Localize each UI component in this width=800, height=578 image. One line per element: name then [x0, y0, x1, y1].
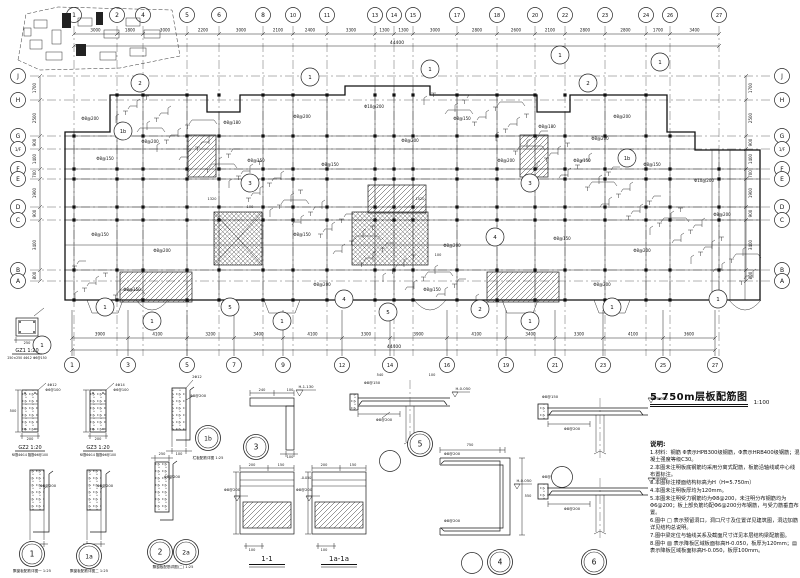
grid-bubble-bottom-label: 14: [387, 363, 393, 369]
rebar-mark: [640, 204, 643, 213]
rebar-mark: [318, 234, 323, 238]
column: [495, 298, 498, 301]
column: [72, 134, 75, 137]
column: [563, 93, 566, 96]
column: [644, 134, 647, 137]
column: [411, 218, 414, 221]
plan-callout-label: 1: [716, 297, 720, 303]
column: [217, 93, 220, 96]
rebar-annotation: Φ10@200: [364, 104, 384, 109]
grid-bubble-top-label: 24: [643, 13, 649, 19]
dim-text: 1900: [32, 187, 37, 198]
rebar-annotation: 100: [435, 253, 442, 257]
column: [392, 218, 395, 221]
grid-bubble-top-label: 17: [454, 13, 460, 19]
column: [644, 268, 647, 271]
rebar-mark: [323, 229, 332, 232]
column: [325, 298, 328, 301]
column: [392, 93, 395, 96]
rebar-annotation: 500: [10, 409, 17, 413]
rebar-mark: [189, 120, 217, 124]
rebar-mark: [599, 175, 602, 184]
grid-bubble-bottom-label: 9: [281, 362, 285, 369]
rebar-mark: [267, 183, 272, 187]
column: [325, 134, 328, 137]
rebar-annotation: 4Φ12: [47, 383, 56, 387]
rebar-annotation: 2Φ12: [192, 375, 201, 379]
plan-callout-label: 1: [308, 75, 312, 81]
detail-1a: [83, 470, 110, 547]
rebar-annotation: Φ8@150: [321, 162, 339, 167]
rebar-mark: [508, 124, 517, 127]
dim-text: 3400: [525, 332, 536, 337]
rebar-mark: [712, 240, 715, 249]
rebar-mark: [630, 182, 633, 191]
section-label: 1a-1a: [329, 555, 349, 563]
detail-6-upper: [538, 398, 666, 458]
grid-bubble-top-label: 18: [494, 13, 500, 19]
dim-text: 4100: [628, 332, 639, 337]
column: [261, 205, 264, 208]
dim-text: 900: [32, 209, 37, 217]
rebar-mark: [281, 200, 309, 204]
rebar-mark: [486, 110, 489, 119]
rebar-mark: [455, 103, 458, 112]
column: [495, 268, 498, 271]
rebar-mark: [681, 233, 684, 242]
column: [563, 134, 566, 137]
grid-bubble-right-label: 1/F: [779, 147, 786, 152]
column: [185, 268, 188, 271]
rebar-annotation: Φ8@200: [564, 426, 581, 431]
dim-text: 3300: [346, 28, 357, 33]
column: [603, 177, 606, 180]
plain-circle: [380, 451, 401, 472]
rebar-mark: [236, 176, 241, 180]
column: [563, 298, 566, 301]
column: [217, 218, 220, 221]
column: [563, 205, 566, 208]
rebar-annotation: 150: [350, 463, 357, 467]
column: [185, 218, 188, 221]
rebar-annotation: Φ8@200: [296, 487, 313, 492]
note-item: 1.材料：钢筋 Φ表示HPB300级钢筋，Φ表示HRB400级钢筋；混凝土强度等…: [650, 450, 800, 464]
grid-bubble-bottom-label: 5: [185, 362, 189, 369]
rebar-annotation: Φ8@150: [91, 232, 109, 237]
rebar-mark: [281, 171, 284, 180]
grid-bubble-left-label: C: [16, 217, 20, 224]
dim-text: 1800: [125, 28, 136, 33]
column: [291, 205, 294, 208]
rebar-mark: [678, 208, 683, 212]
rebar-annotation: 240: [259, 388, 266, 392]
rebar-mark: [123, 111, 128, 115]
grid-bubble-top-label: 1: [72, 12, 76, 19]
dim-text: 3300: [574, 332, 585, 337]
column: [373, 268, 376, 271]
rebar-mark: [436, 294, 445, 297]
grid-bubble-top-label: 26: [667, 13, 673, 19]
dim-text: 3000: [236, 28, 247, 33]
grid-bubble-top-label: 23: [602, 13, 608, 19]
column: [392, 298, 395, 301]
detail-bubble-label: 6: [592, 558, 597, 567]
column: [325, 205, 328, 208]
grid-bubble-right-label: E: [780, 176, 784, 183]
column: [141, 268, 144, 271]
detail-bubble-label: 2: [158, 548, 163, 557]
rebar-annotation: 1320: [208, 197, 217, 201]
dim-text: 2500: [748, 112, 753, 123]
note-item: 4.本图未注明板厚均为120mm。: [650, 488, 800, 495]
rebar-mark: [272, 178, 281, 181]
rebar-annotation: 100: [287, 388, 294, 392]
grid-bubble-left-label: E: [16, 176, 20, 183]
rebar-mark: [292, 222, 301, 225]
rebar-annotation: Φ8@150: [573, 158, 591, 163]
rebar-mark: [568, 168, 571, 177]
grid-bubble-bottom-label: 27: [712, 363, 718, 369]
rebar-annotation: 4Φ14: [115, 383, 125, 387]
rebar-mark: [539, 131, 548, 134]
rebar-mark: [322, 200, 325, 209]
dim-text: 1700: [748, 82, 753, 93]
plan-callout-label: 4: [342, 297, 346, 303]
column: [603, 205, 606, 208]
dim-text: 2800: [580, 28, 591, 33]
column: [717, 205, 720, 208]
plan-callout-label: 2: [478, 307, 482, 313]
column: [141, 205, 144, 208]
dim-total: 44400: [387, 344, 401, 350]
column: [141, 134, 144, 137]
grid-bubble-left-label: 1/F: [15, 147, 22, 152]
plan-callout-label: 3: [248, 181, 252, 187]
column: [411, 93, 414, 96]
dim-text: 900: [32, 138, 37, 146]
rebar-mark: [650, 226, 653, 235]
rebar-annotation: Φ8@150: [453, 116, 471, 121]
column: [373, 167, 376, 170]
grid-bubble-top-label: 20: [532, 13, 538, 19]
rebar-mark: [103, 273, 108, 277]
rebar-mark: [344, 214, 353, 217]
column: [392, 177, 395, 180]
rebar-mark: [179, 157, 188, 160]
column: [141, 167, 144, 170]
rebar-mark: [154, 118, 159, 122]
detail-gz2: [15, 383, 46, 439]
column: [563, 177, 566, 180]
detail-bubble-label: 4: [498, 558, 503, 567]
plan-callout-label: 1: [528, 319, 532, 325]
column: [217, 167, 220, 170]
column: [668, 268, 671, 271]
rebar-annotation: 250: [24, 341, 31, 345]
grid-bubble-bottom-label: 19: [503, 363, 509, 369]
dim-text: 900: [748, 138, 753, 146]
rebar-mark: [693, 225, 702, 228]
grid-bubble-left-label: H: [16, 97, 21, 104]
rebar-annotation: Φ8@200: [164, 474, 181, 479]
dim-text: 2800: [472, 28, 483, 33]
rebar-mark: [87, 283, 96, 286]
rebar-mark: [251, 193, 260, 196]
dim-text: 4100: [307, 332, 318, 337]
column: [392, 205, 395, 208]
dim-text: 3600: [684, 332, 695, 337]
column: [261, 134, 264, 137]
column: [261, 93, 264, 96]
column: [533, 167, 536, 170]
grid-bubble-left-label: D: [16, 204, 21, 211]
dim-text: 700: [32, 170, 37, 178]
detail-caption: 栏板配筋详图 1:25: [193, 455, 224, 460]
rebar-mark: [159, 113, 168, 116]
column: [668, 167, 671, 170]
dim-text: 1900: [748, 187, 753, 198]
rebar-mark: [524, 114, 529, 118]
column: [603, 218, 606, 221]
rebar-annotation: Φ8@180: [223, 120, 241, 125]
rebar-mark: [157, 143, 160, 152]
rebar-mark: [513, 151, 518, 155]
rebar-annotation: Φ8@200: [40, 483, 57, 488]
column: [411, 205, 414, 208]
rebar-mark: [168, 106, 171, 115]
rebar-mark: [445, 110, 473, 114]
detail-1b: [166, 380, 194, 454]
rebar-mark: [585, 187, 590, 191]
grid-bubble-left-label: B: [16, 267, 20, 274]
dim-text: 3000: [90, 28, 101, 33]
dim-text: 1700: [653, 28, 664, 33]
dim-text: 2800: [620, 28, 631, 33]
column: [455, 177, 458, 180]
column: [495, 177, 498, 180]
rebar-mark: [226, 154, 231, 158]
rebar-annotation: Φ8@200: [141, 139, 159, 144]
rebar-annotation: Φ8@200: [190, 393, 207, 398]
rebar-mark: [472, 122, 477, 126]
key-plan: [18, 7, 180, 70]
rebar-annotation: 550: [525, 494, 532, 498]
rebar-mark: [702, 218, 705, 227]
rebar-mark: [609, 197, 612, 206]
rebar-annotation: Φ8@200: [613, 114, 631, 119]
column: [261, 177, 264, 180]
column: [325, 177, 328, 180]
rebar-mark: [457, 279, 466, 282]
rebar-mark: [178, 128, 181, 137]
grid-bubble-bottom-label: 23: [600, 363, 606, 369]
dim-text: 2200: [198, 28, 209, 33]
note-item: 3.本图标注楼面结构标高为H（H=5.750m）: [650, 480, 800, 487]
column: [115, 205, 118, 208]
rebar-mark: [445, 287, 448, 296]
plan-callout-label: 2: [586, 81, 590, 87]
column: [455, 218, 458, 221]
rebar-mark: [219, 157, 222, 166]
plan-callout-label: 1: [103, 305, 107, 311]
dim-text: 3300: [361, 332, 372, 337]
rebar-annotation: Φ8@200: [633, 248, 651, 253]
rebar-annotation: 100: [321, 548, 328, 552]
grid-bubble-top-label: 15: [410, 13, 416, 19]
note-item: 2.本图未注明板底钢筋均采用分离式配筋，板筋沿轴线或中心线布置标注。: [650, 465, 800, 479]
column: [495, 218, 498, 221]
column: [185, 298, 188, 301]
grid-bubble-right-label: H: [780, 97, 785, 104]
column: [495, 205, 498, 208]
rebar-mark: [308, 212, 313, 216]
column: [668, 298, 671, 301]
rebar-mark: [497, 102, 525, 106]
column: [185, 167, 188, 170]
column: [668, 205, 671, 208]
column: [644, 298, 647, 301]
column: [644, 167, 647, 170]
rebar-annotation: 750: [467, 443, 474, 447]
rebar-mark: [414, 280, 417, 289]
column: [495, 167, 498, 170]
rebar-mark: [647, 201, 652, 205]
grid-bubble-left-label: G: [16, 133, 21, 140]
rebar-annotation: Φ8@150: [553, 236, 571, 241]
column: [533, 93, 536, 96]
rebar-annotation: 100: [287, 455, 294, 459]
rebar-annotation: Φ8@150: [423, 287, 441, 292]
note-item: 5.本图未注明受力钢筋均为Φ8@200，未注明分布钢筋均为Φ6@200；板上部负…: [650, 496, 800, 517]
rebar-annotation: 250: [159, 452, 166, 456]
rebar-mark: [517, 117, 520, 126]
plan-callout-label: 5: [386, 310, 390, 316]
column: [325, 268, 328, 271]
rebar-annotation: 100: [176, 452, 183, 456]
rebar-annotation: 100: [247, 205, 254, 209]
rebar-mark: [383, 273, 386, 282]
grid-bubble-bottom-label: 7: [232, 362, 236, 369]
rebar-mark: [260, 186, 263, 195]
rebar-mark: [698, 252, 703, 256]
rebar-mark: [719, 237, 724, 241]
rebar-mark: [722, 262, 725, 271]
column: [72, 205, 75, 208]
dim-text: 3400: [748, 239, 753, 250]
rebar-annotation: 100: [249, 548, 256, 552]
dim-text: 1400: [32, 153, 37, 164]
rebar-annotation: -0.050: [301, 476, 312, 480]
column: [217, 268, 220, 271]
dim-text: 2100: [273, 28, 284, 33]
column: [644, 177, 647, 180]
rebar-annotation: Φ8@200: [293, 114, 311, 119]
detail-caption: 飘窗板配筋详图一 1:25: [13, 568, 51, 573]
rebar-mark: [250, 164, 253, 173]
column: [392, 134, 395, 137]
rebar-mark: [452, 284, 457, 288]
dim-text: 3000: [160, 28, 171, 33]
rebar-mark: [229, 179, 232, 188]
plan-callout-label: 1: [610, 305, 614, 311]
rebar-mark: [606, 172, 611, 176]
detail-bubble-label: 1a: [85, 554, 93, 561]
column: [533, 268, 536, 271]
rebar-mark: [477, 117, 486, 120]
column: [217, 134, 220, 137]
column: [291, 218, 294, 221]
column: [115, 167, 118, 170]
rebar-mark: [549, 153, 558, 156]
grid-bubble-right-label: C: [780, 217, 784, 224]
column: [644, 205, 647, 208]
column: [373, 177, 376, 180]
rebar-annotation: 200: [27, 437, 34, 441]
dim-text: 3000: [430, 28, 441, 33]
column: [455, 134, 458, 137]
plan-callout-label: 1: [150, 319, 154, 325]
rebar-annotation: Φ8@200: [81, 116, 99, 121]
rebar-mark: [96, 276, 99, 285]
column: [291, 298, 294, 301]
column: [217, 298, 220, 301]
grid-bubble-top-label: 4: [141, 12, 145, 19]
rebar-mark: [626, 216, 631, 220]
column: [115, 218, 118, 221]
plan-callout-label: 1: [658, 60, 662, 66]
rebar-mark: [116, 114, 119, 123]
column: [373, 205, 376, 208]
rebar-mark: [493, 107, 498, 111]
grid-bubble-top-label: 22: [562, 13, 568, 19]
detail-bubble-label: 2a: [182, 550, 190, 557]
rebar-mark: [339, 219, 344, 223]
rebar-mark: [333, 251, 342, 254]
column: [325, 218, 328, 221]
rebar-mark: [164, 140, 169, 144]
dim-text: 1300: [398, 28, 409, 33]
rebar-annotation: Φ8@150: [293, 232, 311, 237]
gz-sub: 纵筋6Φ14 箍筋Φ6@100: [80, 452, 116, 457]
section-1a-1a: [305, 465, 366, 549]
column: [261, 268, 264, 271]
rebar-mark: [137, 99, 140, 108]
rebar-mark: [301, 215, 304, 224]
plan-callout-label: 4: [493, 235, 497, 241]
note-item: 6.图中 □ 表示预留洞口，洞口尺寸及位置详见建筑图，洞边加筋详见结构总说明。: [650, 518, 800, 532]
rebar-mark: [733, 254, 761, 258]
column: [325, 167, 328, 170]
rebar-annotation: Φ8@200: [97, 483, 114, 488]
dim-text: 1400: [748, 153, 753, 164]
rebar-mark: [753, 269, 756, 278]
rebar-annotation: Φ8@200: [593, 282, 611, 287]
rebar-mark: [169, 135, 178, 138]
detail-bubble-label: 3: [254, 443, 259, 452]
column: [603, 167, 606, 170]
dim-text: 4100: [471, 332, 482, 337]
plan-callout-label: 1: [280, 319, 284, 325]
grid-bubble-top-label: 5: [185, 12, 189, 19]
grid-bubble-top-label: 11: [324, 13, 330, 19]
column: [261, 298, 264, 301]
rebar-annotation: Φ10@200: [694, 178, 714, 183]
rebar-annotation: Φ8@200: [376, 417, 393, 422]
column: [291, 268, 294, 271]
grid-bubble-right-label: G: [780, 133, 785, 140]
rebar-annotation: 200: [249, 463, 256, 467]
rebar-annotation: Φ8@200: [444, 451, 461, 456]
